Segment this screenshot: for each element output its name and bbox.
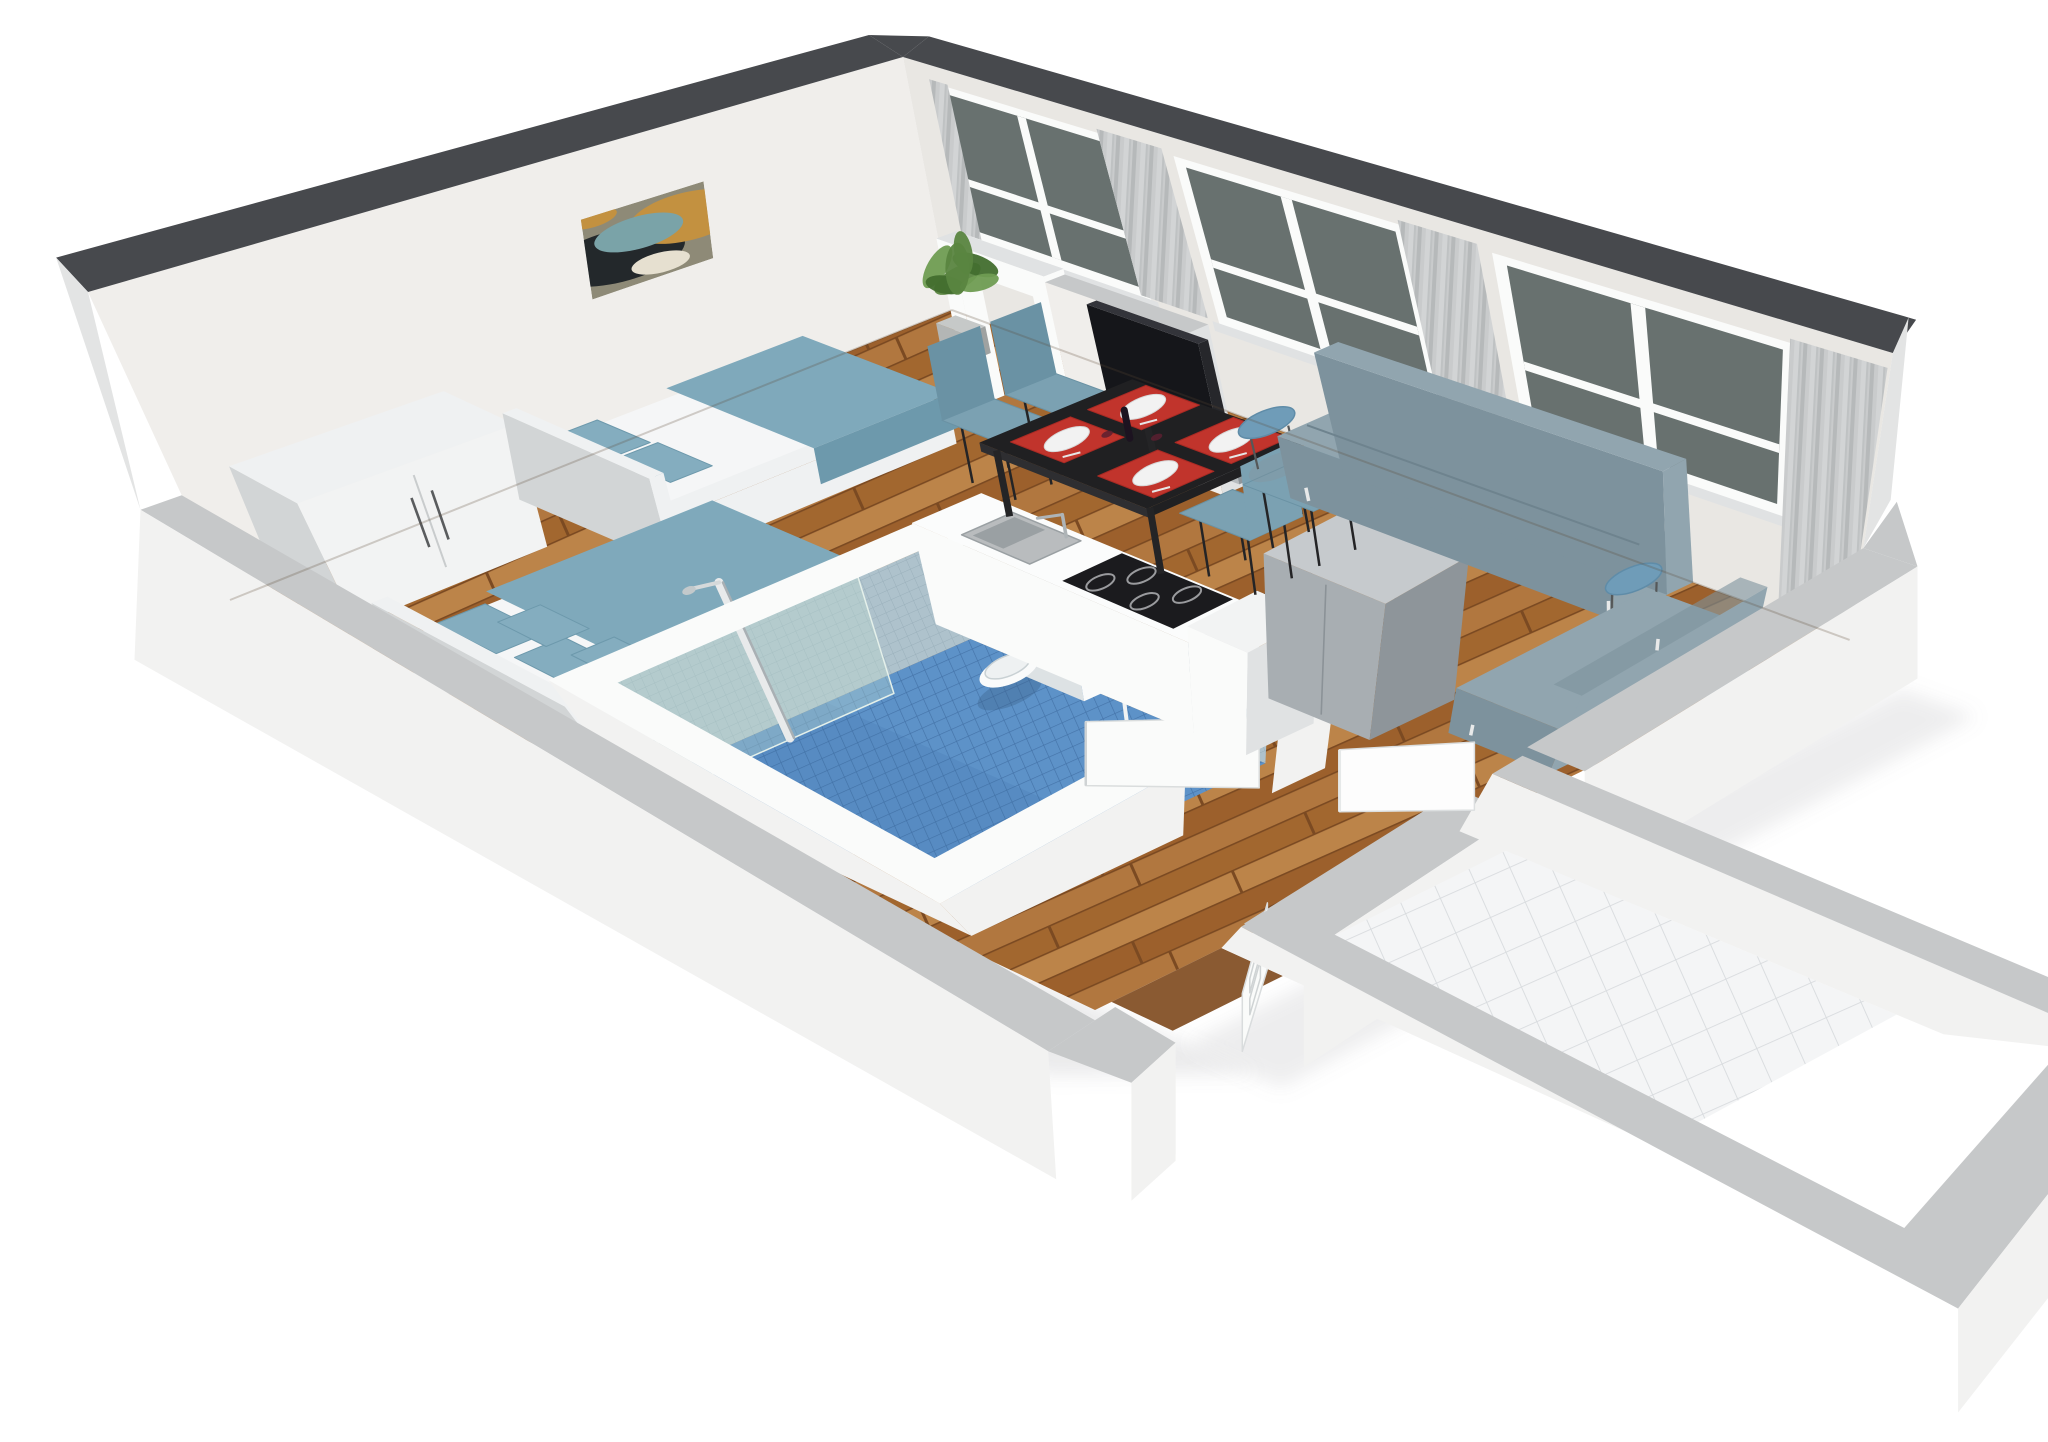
daybed-leg-a — [1471, 725, 1473, 736]
daybed-leg-b — [1657, 639, 1658, 650]
plant-leaf-6 — [945, 243, 969, 295]
render-stage — [0, 0, 2048, 1442]
vestibule-door — [1340, 742, 1475, 812]
apartment-3d-floorplan — [0, 0, 2048, 1442]
